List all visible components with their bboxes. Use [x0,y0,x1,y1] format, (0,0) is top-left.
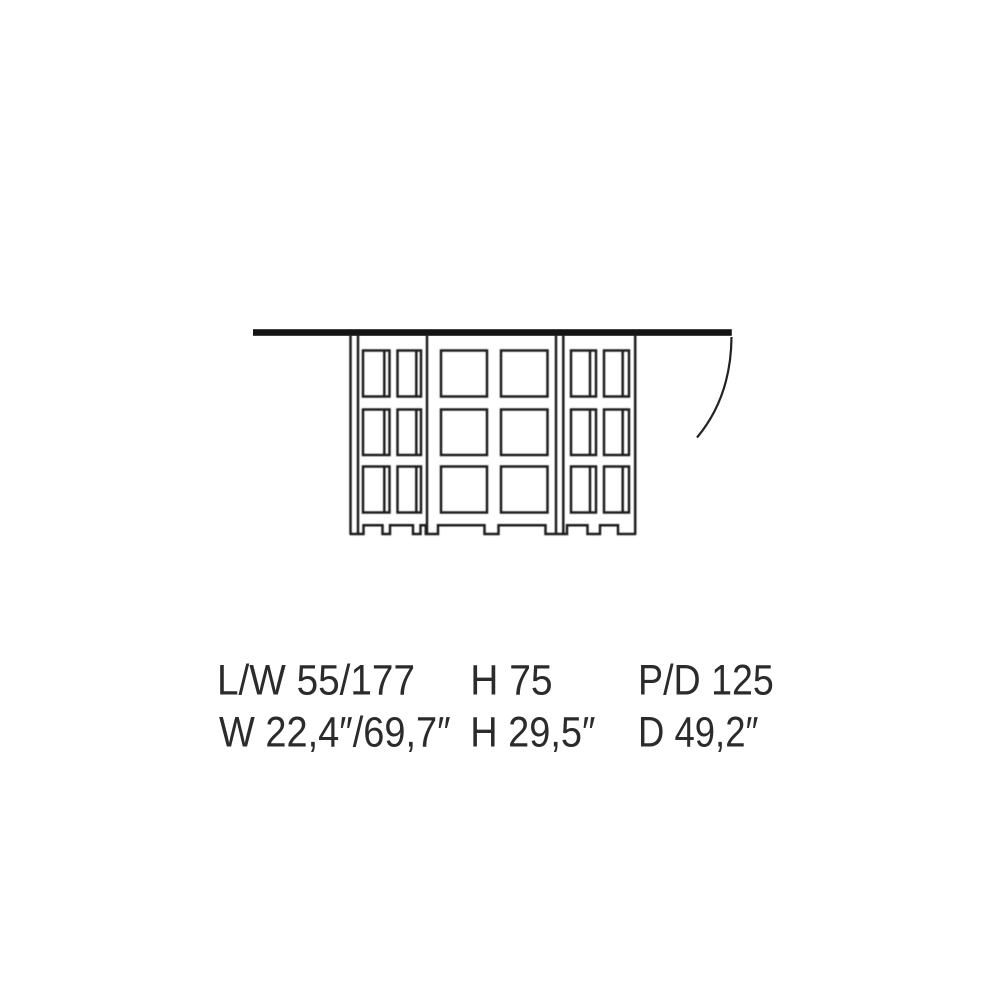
svg-text:D 49,2″: D 49,2″ [638,709,758,757]
svg-text:L/W 55/177: L/W 55/177 [217,657,415,705]
svg-text:P/D 125: P/D 125 [638,657,774,705]
svg-text:H 75: H 75 [470,657,552,705]
svg-text:H 29,5″: H 29,5″ [470,709,595,757]
svg-text:W 22,4″/69,7″: W 22,4″/69,7″ [219,709,451,757]
